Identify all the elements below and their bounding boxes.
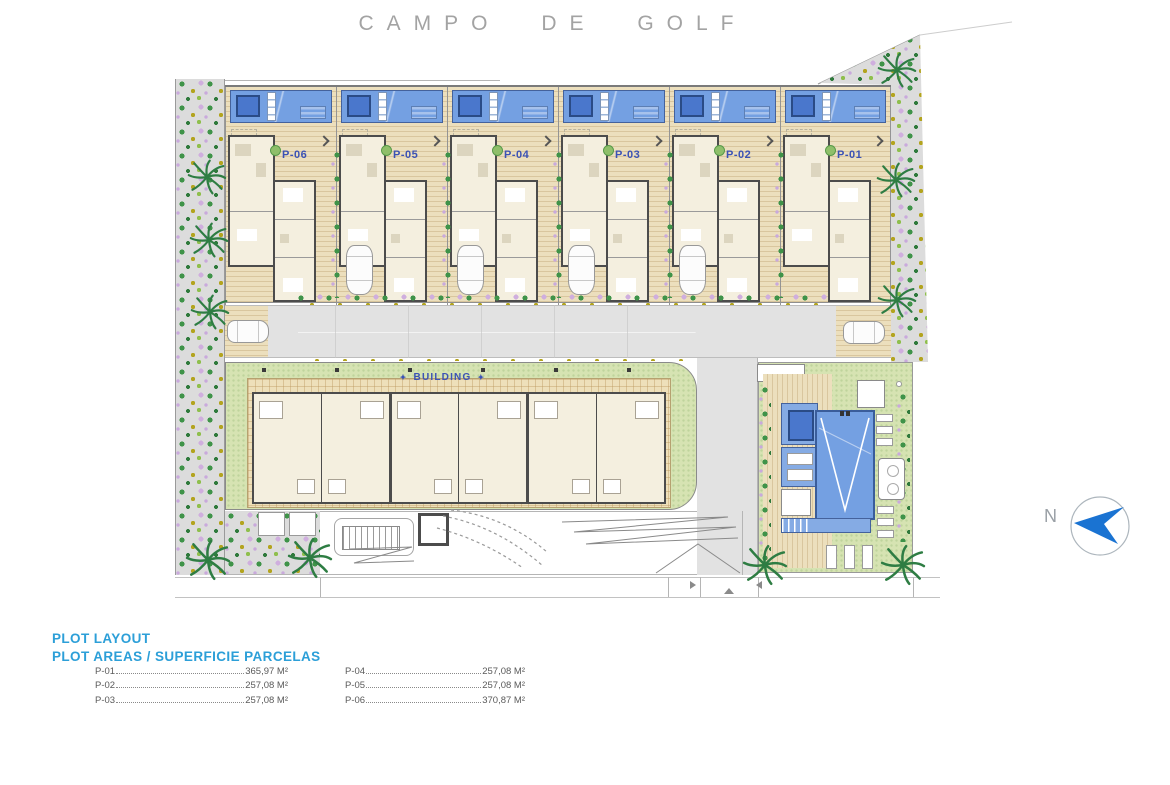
dotted-leader <box>366 673 481 674</box>
floorplan-bedrooms <box>606 180 649 302</box>
north-indicator <box>1068 494 1132 558</box>
north-label: N <box>1044 506 1058 527</box>
sun-lounger <box>862 545 873 569</box>
shrub-strip <box>664 150 673 298</box>
direction-marker-icon <box>690 581 696 589</box>
private-pool <box>563 90 665 123</box>
apartment-unit <box>322 394 392 502</box>
dotted-leader <box>366 687 481 688</box>
floorplan-living <box>228 135 275 267</box>
entry-arrow-icon <box>651 135 662 146</box>
pool-divider <box>267 92 276 121</box>
plot-label: P-01 <box>837 149 862 161</box>
plot-areas-column: P-04257,08 M² P-05257,08 M² P-06370,87 M… <box>345 666 525 709</box>
entry-arrow-icon <box>318 135 329 146</box>
grid-line <box>335 305 336 358</box>
pool-steps <box>633 106 659 119</box>
pool-steps <box>854 106 880 119</box>
plot-area-value: 257,08 M² <box>482 680 525 691</box>
plot-area-value: 257,08 M² <box>482 666 525 677</box>
plot-id: P-06 <box>345 695 365 706</box>
private-pool <box>452 90 554 123</box>
grid-line <box>408 305 409 358</box>
pool-steps <box>522 106 548 119</box>
column-dot <box>627 368 631 372</box>
apartment-unit <box>459 394 529 502</box>
apartment-unit <box>254 394 322 502</box>
dotted-leader <box>366 702 481 703</box>
jacuzzi <box>347 95 371 117</box>
plot-area-row: P-04257,08 M² <box>345 666 525 680</box>
storage-box <box>258 512 285 536</box>
plot-label: P-04 <box>504 149 529 161</box>
plot-unit: P-03 <box>558 87 669 305</box>
grid-line <box>627 305 628 358</box>
plot-area-value: 257,08 M² <box>245 695 288 706</box>
shrub-strip <box>775 150 784 298</box>
pool-divider <box>822 92 831 121</box>
floorplan-living <box>783 135 830 267</box>
floorplan-bedrooms <box>828 180 871 302</box>
grid-line <box>481 305 482 358</box>
pool-steps <box>300 106 326 119</box>
sun-lounger <box>877 506 894 514</box>
road <box>268 305 836 358</box>
sun-lounger <box>877 518 894 526</box>
ornament-diamond: ✦ <box>477 373 485 382</box>
column-dot <box>481 368 485 372</box>
lounger-platform <box>781 447 818 487</box>
sun-lounger <box>844 545 855 569</box>
main-pool <box>815 410 875 522</box>
direction-marker-icon <box>724 588 734 594</box>
pool-divider <box>711 92 720 121</box>
sun-lounger <box>876 426 893 434</box>
car-icon <box>457 245 484 295</box>
private-pool <box>230 90 332 123</box>
palm-tree-icon <box>187 157 227 197</box>
car-icon <box>679 245 706 295</box>
dotted-leader <box>116 702 244 703</box>
pool-divider <box>600 92 609 121</box>
car-icon <box>227 320 269 343</box>
pool-steps <box>411 106 437 119</box>
jacuzzi <box>791 95 815 117</box>
kids-pool <box>781 403 818 445</box>
floorplan-bedrooms <box>384 180 427 302</box>
palm-tree-icon <box>876 160 916 200</box>
palm-tree-icon <box>877 50 917 90</box>
plot-area-row: P-05257,08 M² <box>345 680 525 694</box>
tree-icon <box>603 145 614 156</box>
palm-tree-icon <box>189 220 229 260</box>
tree-icon <box>270 145 281 156</box>
plot-label: P-02 <box>726 149 751 161</box>
dotted-leader <box>116 673 244 674</box>
plot-area-value: 257,08 M² <box>245 680 288 691</box>
shrub-strip <box>331 150 340 298</box>
private-pool <box>785 90 886 123</box>
column-dot <box>408 368 412 372</box>
plot-area-row: P-01365,97 M² <box>95 666 288 680</box>
floorplan-bedrooms <box>273 180 316 302</box>
plot-unit: P-04 <box>447 87 558 305</box>
jacuzzi <box>569 95 593 117</box>
sidewalk-joint <box>668 577 669 597</box>
plot-id: P-04 <box>345 666 365 677</box>
tree-icon <box>825 145 836 156</box>
legend-subtitle: PLOT AREAS / SUPERFICIE PARCELAS <box>52 649 321 664</box>
jacuzzi <box>458 95 482 117</box>
plot-unit: P-05 <box>336 87 447 305</box>
planter-box <box>781 489 811 516</box>
plot-label: P-03 <box>615 149 640 161</box>
car-icon <box>843 321 885 344</box>
pool-steps <box>744 106 770 119</box>
grid-line <box>554 305 555 358</box>
palm-tree-icon <box>287 535 333 581</box>
building-label: ✦ BUILDING ✦ <box>380 370 505 384</box>
tree-icon <box>714 145 725 156</box>
plot-id: P-02 <box>95 680 115 691</box>
sun-lounger <box>826 545 837 569</box>
tree-icon <box>492 145 503 156</box>
shrub-strip <box>553 150 562 298</box>
building-label-text: BUILDING <box>414 372 472 383</box>
plot-id: P-03 <box>95 695 115 706</box>
car-icon <box>568 245 595 295</box>
planter-box <box>857 380 885 408</box>
palm-tree-icon <box>742 542 788 588</box>
plot-areas-column: P-01365,97 M² P-02257,08 M² P-03257,08 M… <box>95 666 288 709</box>
entry-arrow-icon <box>762 135 773 146</box>
shrub-strip <box>759 385 771 565</box>
pool-steps <box>781 518 871 533</box>
outdoor-counter <box>878 458 905 500</box>
apartment-unit <box>529 394 597 502</box>
plot-id: P-05 <box>345 680 365 691</box>
plot-area-row: P-02257,08 M² <box>95 680 288 694</box>
entry-arrow-icon <box>872 135 883 146</box>
storage-box <box>289 512 316 536</box>
plot-label: P-06 <box>282 149 307 161</box>
palm-tree-icon <box>880 542 926 588</box>
plot-label: P-05 <box>393 149 418 161</box>
apartment-unit <box>392 394 460 502</box>
sidewalk-line <box>175 597 940 598</box>
plot-unit: P-02 <box>669 87 780 305</box>
car-icon <box>346 245 373 295</box>
palm-tree-icon <box>185 537 231 583</box>
palm-tree-icon <box>877 280 917 320</box>
plot-area-row: P-03257,08 M² <box>95 695 288 709</box>
plot-unit: P-06 <box>225 87 336 305</box>
column-dot <box>262 368 266 372</box>
dotted-leader <box>116 687 244 688</box>
shrub-strip <box>442 150 451 298</box>
plot-area-value: 370,87 M² <box>482 695 525 706</box>
column-dot <box>335 368 339 372</box>
plot-area-value: 365,97 M² <box>245 666 288 677</box>
legend-title: PLOT LAYOUT <box>52 631 150 646</box>
column-dot <box>554 368 558 372</box>
sidewalk-joint <box>700 577 701 597</box>
palm-tree-icon <box>190 292 230 332</box>
jacuzzi <box>680 95 704 117</box>
plot-area-row: P-06370,87 M² <box>345 695 525 709</box>
plot-unit: P-01 <box>780 87 891 305</box>
entry-arrow-icon <box>540 135 551 146</box>
pool-divider <box>489 92 498 121</box>
floorplan-bedrooms <box>717 180 760 302</box>
pool-light <box>896 381 902 387</box>
private-pool <box>341 90 443 123</box>
ramp-guides <box>435 508 550 574</box>
plot-id: P-01 <box>95 666 115 677</box>
apartment-unit <box>597 394 664 502</box>
private-pool <box>674 90 776 123</box>
sun-lounger <box>876 438 893 446</box>
site-plan-sheet: CAMPO DE GOLF P-06 P-05 <box>0 0 1170 785</box>
gate-marker <box>652 538 744 575</box>
sun-lounger <box>877 530 894 538</box>
sun-lounger <box>876 414 893 422</box>
pool-divider <box>378 92 387 121</box>
apartments-band <box>252 392 666 504</box>
jacuzzi <box>236 95 260 117</box>
entry-arrow-icon <box>429 135 440 146</box>
ornament-diamond: ✦ <box>400 373 408 382</box>
ramp-zigzag-small <box>348 545 418 565</box>
tree-icon <box>381 145 392 156</box>
floorplan-bedrooms <box>495 180 538 302</box>
